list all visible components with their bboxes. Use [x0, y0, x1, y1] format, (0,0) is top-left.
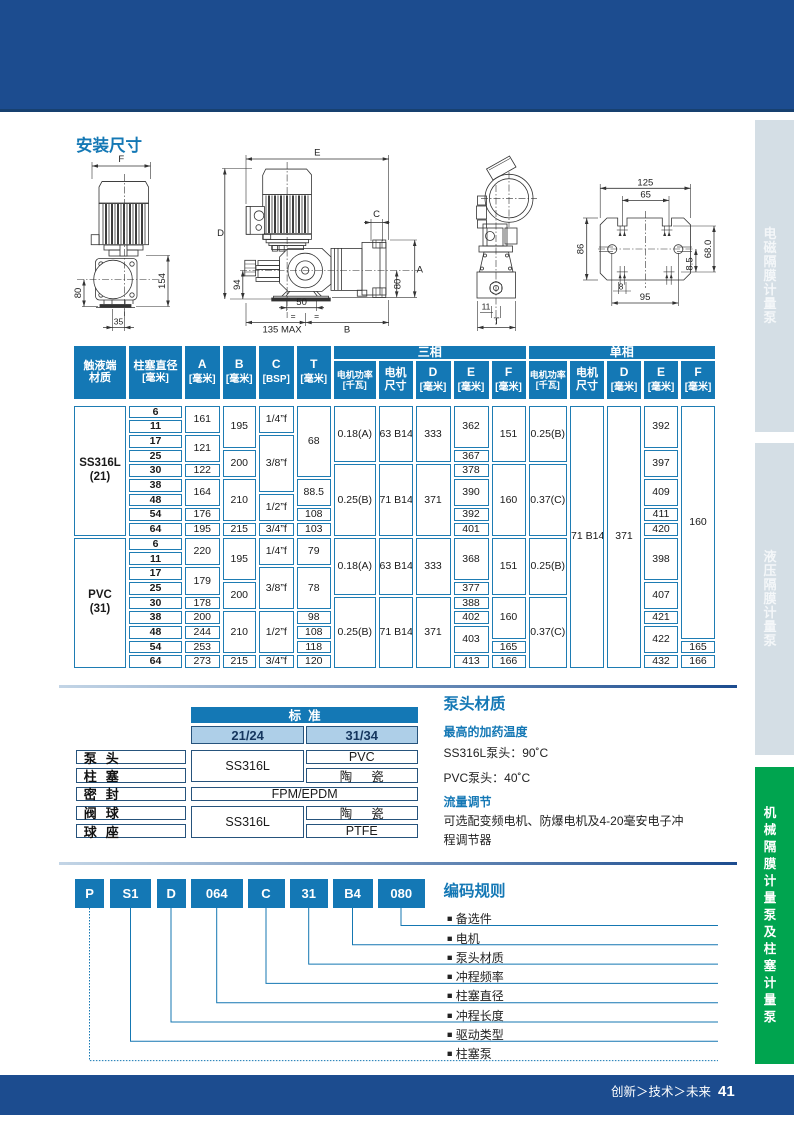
svg-text:A: A — [417, 265, 424, 276]
svg-text:154: 154 — [157, 273, 168, 289]
svg-text:86: 86 — [576, 244, 587, 255]
svg-text:50: 50 — [296, 297, 307, 308]
svg-text:=: = — [314, 311, 319, 321]
svg-text:95: 95 — [640, 292, 651, 303]
svg-text:80: 80 — [393, 279, 404, 290]
svg-text:C: C — [373, 209, 380, 220]
svg-text:E: E — [314, 148, 320, 159]
svg-text:B: B — [344, 325, 350, 336]
svg-text:T: T — [494, 316, 500, 327]
svg-text:D: D — [217, 228, 224, 239]
svg-text:F: F — [118, 154, 124, 165]
svg-text:8: 8 — [619, 282, 624, 292]
svg-text:65: 65 — [640, 189, 651, 200]
svg-text:125: 125 — [637, 177, 653, 188]
svg-text:135 MAX: 135 MAX — [262, 325, 302, 336]
svg-text:11: 11 — [482, 302, 491, 312]
svg-text:68.0: 68.0 — [703, 240, 714, 259]
svg-text:94: 94 — [232, 279, 243, 290]
svg-text:8.5: 8.5 — [685, 257, 696, 270]
svg-text:80: 80 — [73, 288, 84, 299]
svg-text:35: 35 — [114, 317, 124, 327]
svg-text:=: = — [291, 311, 296, 321]
